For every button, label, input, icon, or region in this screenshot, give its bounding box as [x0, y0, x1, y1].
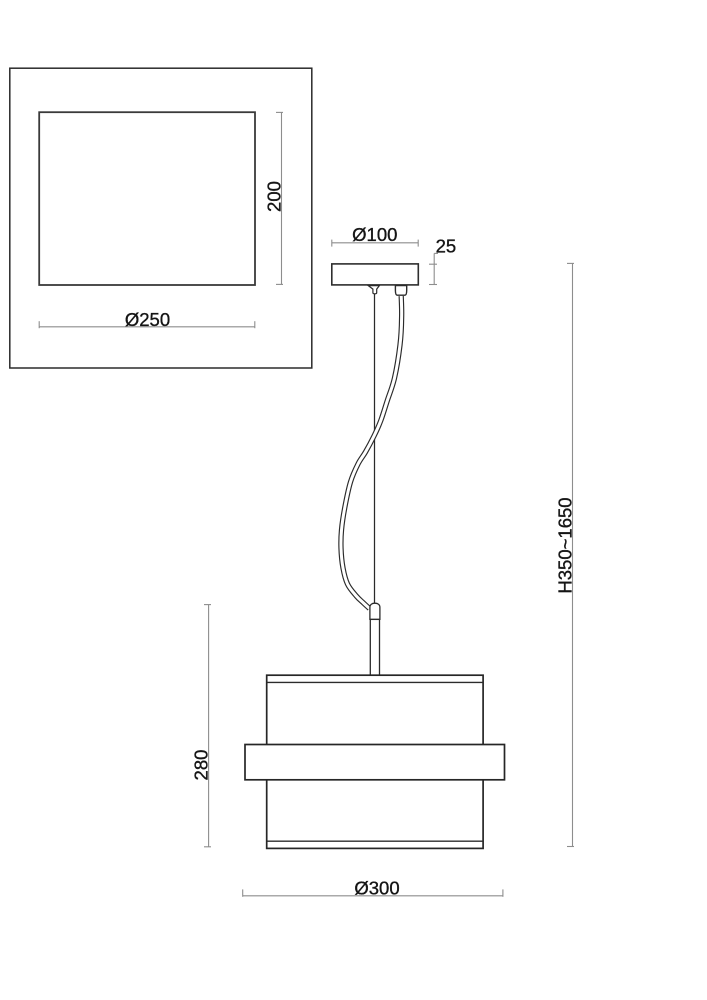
svg-text:Ø250: Ø250 — [125, 309, 170, 330]
svg-text:Ø300: Ø300 — [354, 877, 399, 898]
svg-text:25: 25 — [436, 235, 457, 256]
svg-text:H350~1650: H350~1650 — [554, 497, 575, 593]
svg-text:Ø100: Ø100 — [352, 224, 397, 245]
svg-text:200: 200 — [263, 181, 284, 212]
svg-text:280: 280 — [191, 750, 212, 781]
